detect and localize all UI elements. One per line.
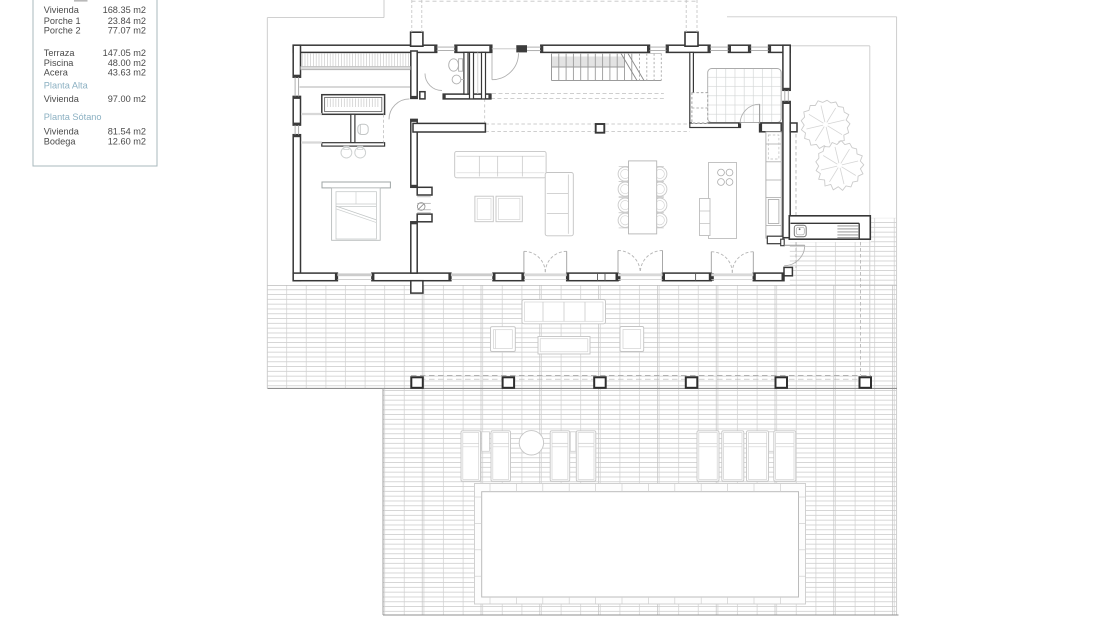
svg-text:Porche 1: Porche 1 xyxy=(44,16,81,26)
svg-text:147.05 m2: 147.05 m2 xyxy=(103,48,146,58)
svg-text:168.35 m2: 168.35 m2 xyxy=(103,5,146,15)
svg-text:Planta Sótano: Planta Sótano xyxy=(44,112,102,122)
svg-text:Acera: Acera xyxy=(44,67,69,77)
svg-text:Vivienda: Vivienda xyxy=(44,5,80,15)
svg-text:48.00 m2: 48.00 m2 xyxy=(108,58,146,68)
svg-text:Bodega: Bodega xyxy=(44,136,77,146)
svg-text:Planta Alta: Planta Alta xyxy=(44,80,89,90)
svg-text:Piscina: Piscina xyxy=(44,58,75,68)
svg-text:12.60 m2: 12.60 m2 xyxy=(108,136,146,146)
svg-text:Porche 2: Porche 2 xyxy=(44,26,81,36)
svg-text:43.63 m2: 43.63 m2 xyxy=(108,67,146,77)
svg-text:81.54 m2: 81.54 m2 xyxy=(108,126,146,136)
svg-text:Vivienda: Vivienda xyxy=(44,126,80,136)
svg-text:77.07 m2: 77.07 m2 xyxy=(108,26,146,36)
svg-text:97.00 m2: 97.00 m2 xyxy=(108,94,146,104)
svg-text:23.84 m2: 23.84 m2 xyxy=(108,16,146,26)
svg-text:Vivienda: Vivienda xyxy=(44,94,80,104)
svg-text:Terraza: Terraza xyxy=(44,48,76,58)
